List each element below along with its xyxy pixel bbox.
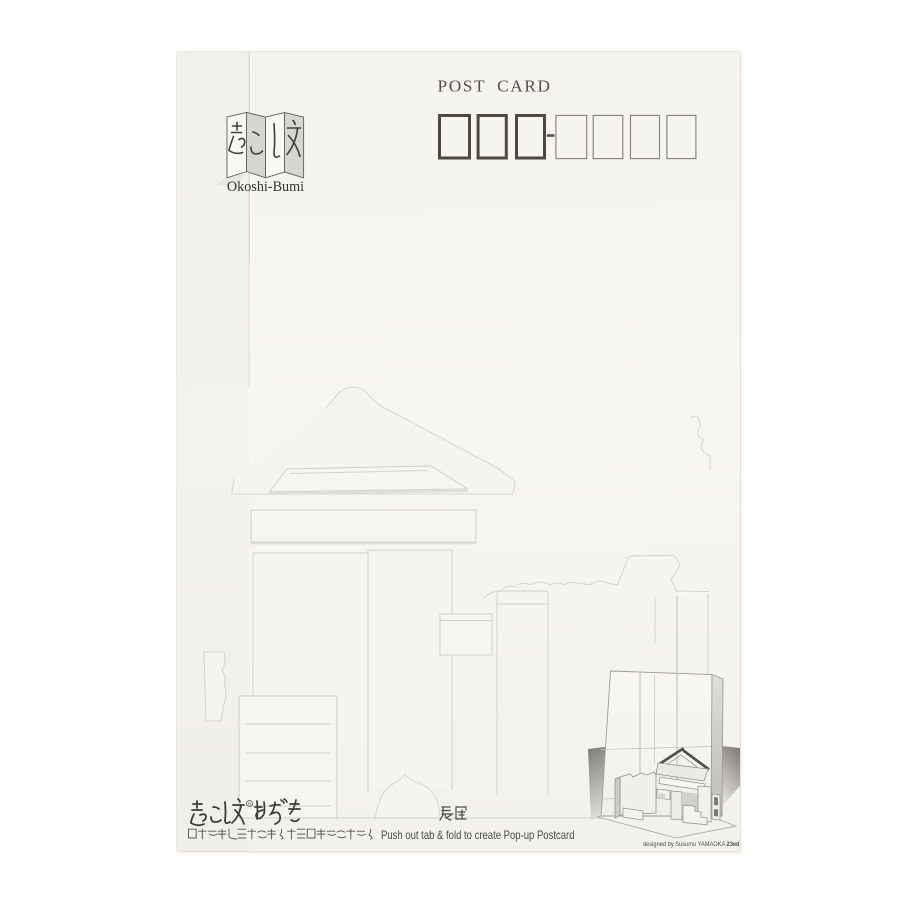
svg-text:designed by Susumu YAMAOKA 23e: designed by Susumu YAMAOKA 23ed <box>643 841 740 848</box>
svg-text:Push out tab & fold to create: Push out tab & fold to create Pop-up Pos… <box>381 829 575 842</box>
svg-text:Okoshi-Bumi: Okoshi-Bumi <box>227 179 304 195</box>
svg-text:POSTCARD: POSTCARD <box>438 77 552 96</box>
